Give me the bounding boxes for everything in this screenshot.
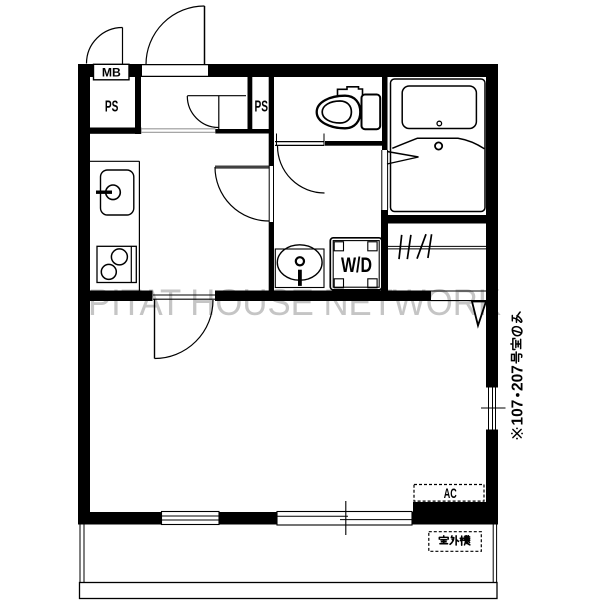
svg-text:PS: PS: [255, 99, 269, 116]
svg-text:207: 207: [510, 365, 527, 391]
svg-text:PS: PS: [105, 99, 119, 116]
svg-text:MB: MB: [102, 66, 121, 80]
svg-text:107: 107: [510, 400, 527, 426]
svg-text:W/D: W/D: [341, 253, 372, 277]
svg-text:AC: AC: [444, 486, 457, 501]
